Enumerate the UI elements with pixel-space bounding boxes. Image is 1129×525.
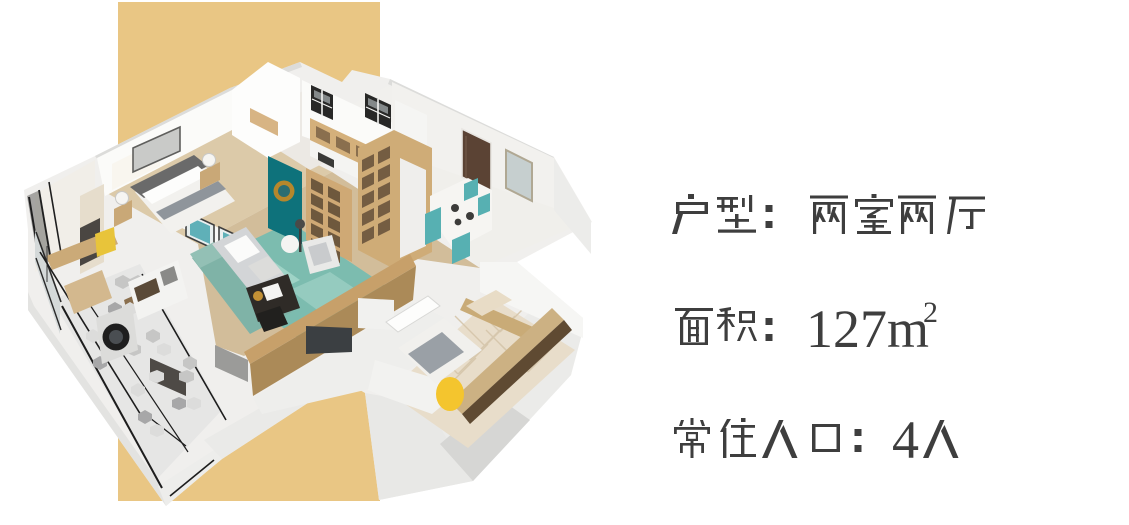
svg-text:127m: 127m <box>806 299 929 359</box>
svg-text:2: 2 <box>923 296 938 329</box>
svg-text:4: 4 <box>892 410 919 470</box>
